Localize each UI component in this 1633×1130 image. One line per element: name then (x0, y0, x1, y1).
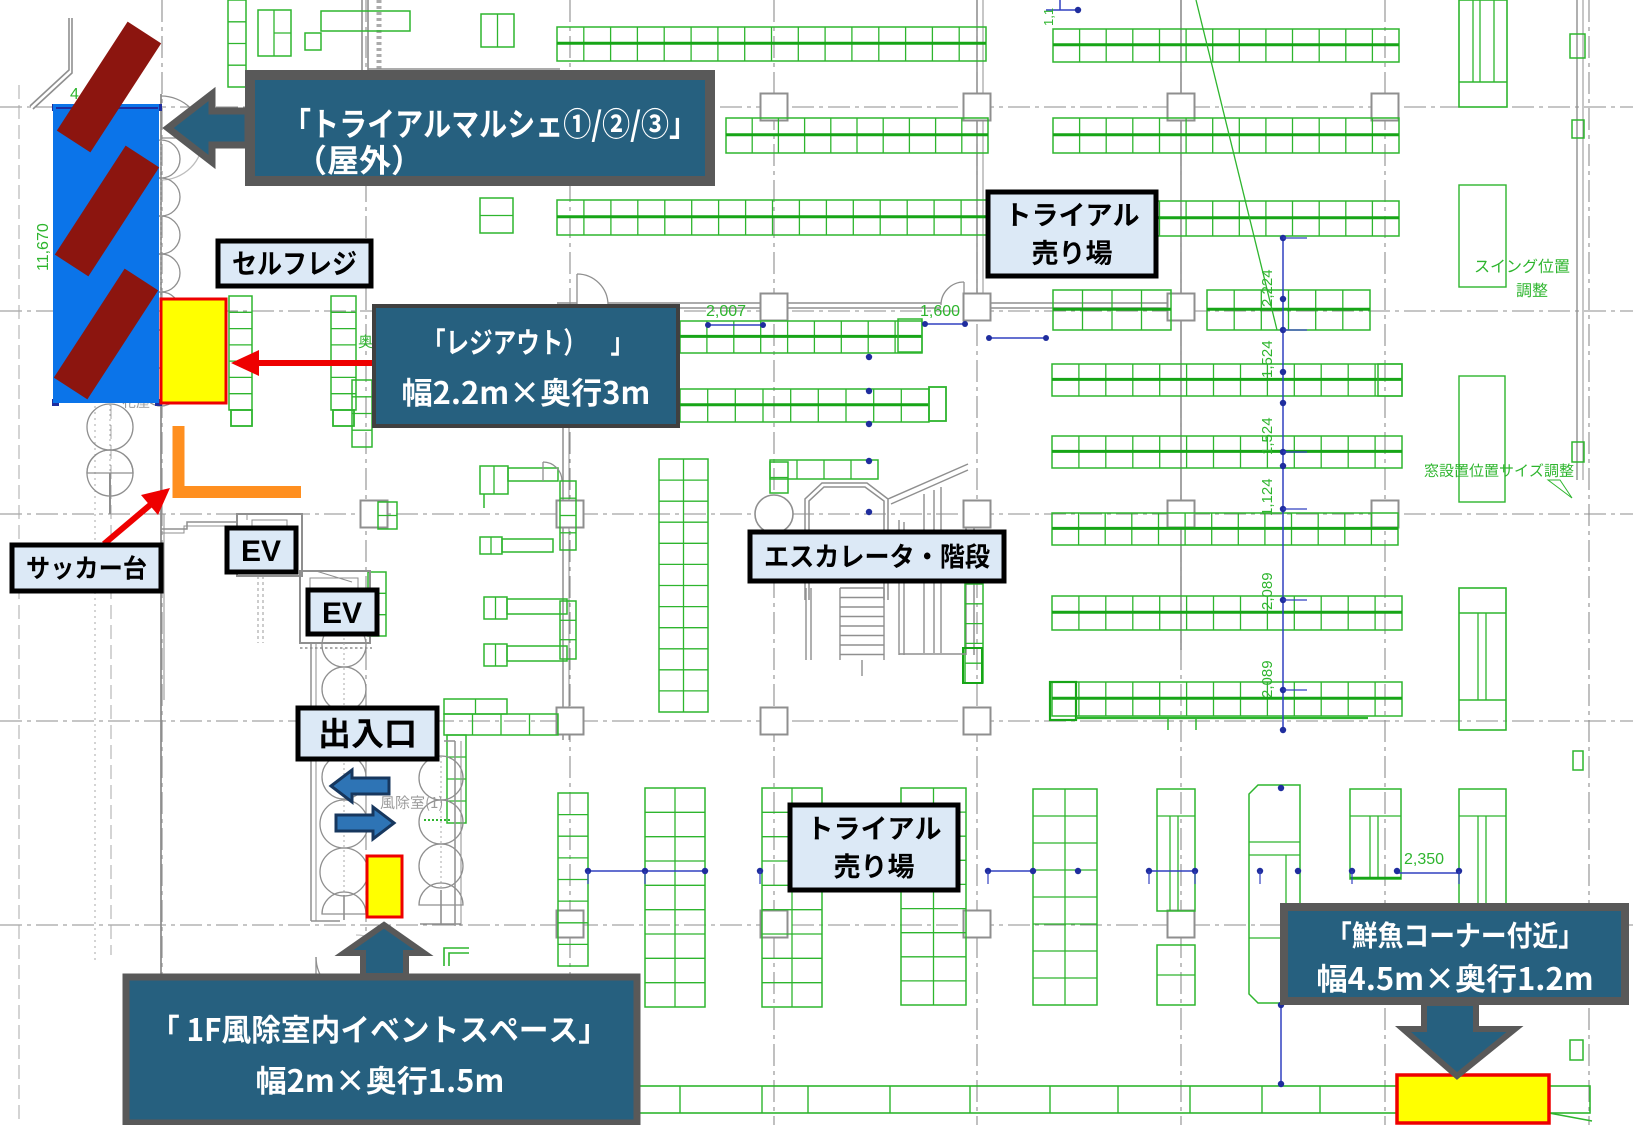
svg-text:EV: EV (241, 535, 281, 568)
svg-text:1,524: 1,524 (1259, 417, 1276, 455)
svg-text:11,670: 11,670 (35, 223, 52, 271)
svg-text:1,524: 1,524 (1259, 340, 1276, 378)
svg-text:2,089: 2,089 (1259, 660, 1276, 698)
svg-text:1,124: 1,124 (1259, 478, 1276, 516)
svg-text:2,089: 2,089 (1259, 572, 1276, 610)
svg-text:1,1: 1,1 (1041, 8, 1056, 26)
svg-text:2,350: 2,350 (1404, 851, 1444, 868)
svg-text:2,224: 2,224 (1259, 269, 1276, 307)
svg-text:2,007: 2,007 (706, 303, 746, 320)
svg-text:EV: EV (322, 597, 362, 630)
svg-text:1,600: 1,600 (920, 303, 960, 320)
